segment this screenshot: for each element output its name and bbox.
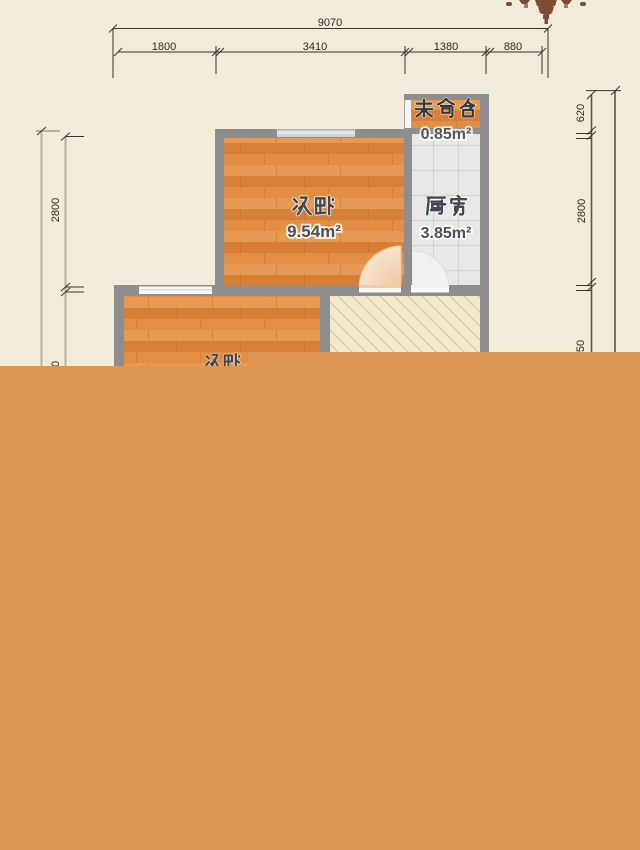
svg-text:3.85m²: 3.85m² [421, 225, 472, 242]
svg-text:2800: 2800 [50, 198, 62, 222]
svg-text:0.85m²: 0.85m² [421, 126, 472, 143]
svg-text:9070: 9070 [318, 17, 342, 29]
svg-text:1800: 1800 [152, 41, 176, 53]
svg-text:50: 50 [575, 340, 587, 352]
svg-text:9.54m²: 9.54m² [287, 222, 341, 241]
svg-text:3410: 3410 [303, 41, 327, 53]
svg-text:1380: 1380 [434, 41, 458, 53]
svg-text:2800: 2800 [576, 199, 588, 223]
svg-text:880: 880 [504, 41, 522, 53]
svg-text:620: 620 [575, 104, 587, 122]
